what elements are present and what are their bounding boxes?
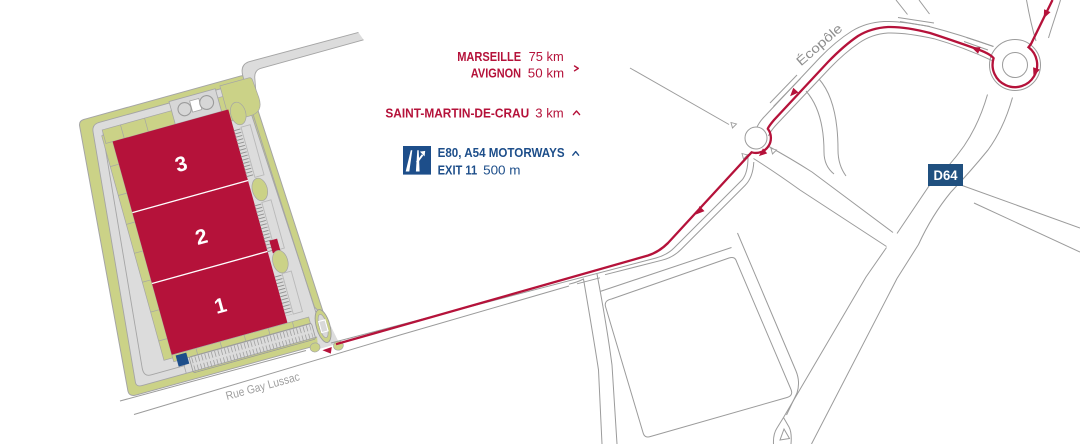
svg-text:AVIGNON: AVIGNON: [471, 66, 521, 81]
svg-text:3 km: 3 km: [535, 106, 563, 121]
svg-text:D64: D64: [934, 168, 958, 183]
svg-text:SAINT-MARTIN-DE-CRAU: SAINT-MARTIN-DE-CRAU: [385, 106, 529, 121]
svg-text:EXIT 11: EXIT 11: [438, 162, 478, 177]
svg-text:500 m: 500 m: [483, 162, 520, 177]
svg-text:E80, A54 MOTORWAYS: E80, A54 MOTORWAYS: [438, 145, 565, 160]
svg-text:50 km: 50 km: [528, 66, 564, 81]
svg-text:Rue Gay Lussac: Rue Gay Lussac: [224, 369, 301, 402]
svg-text:Écopôle: Écopôle: [793, 21, 845, 69]
svg-text:MARSEILLE: MARSEILLE: [457, 49, 521, 64]
svg-text:75 km: 75 km: [529, 49, 564, 64]
